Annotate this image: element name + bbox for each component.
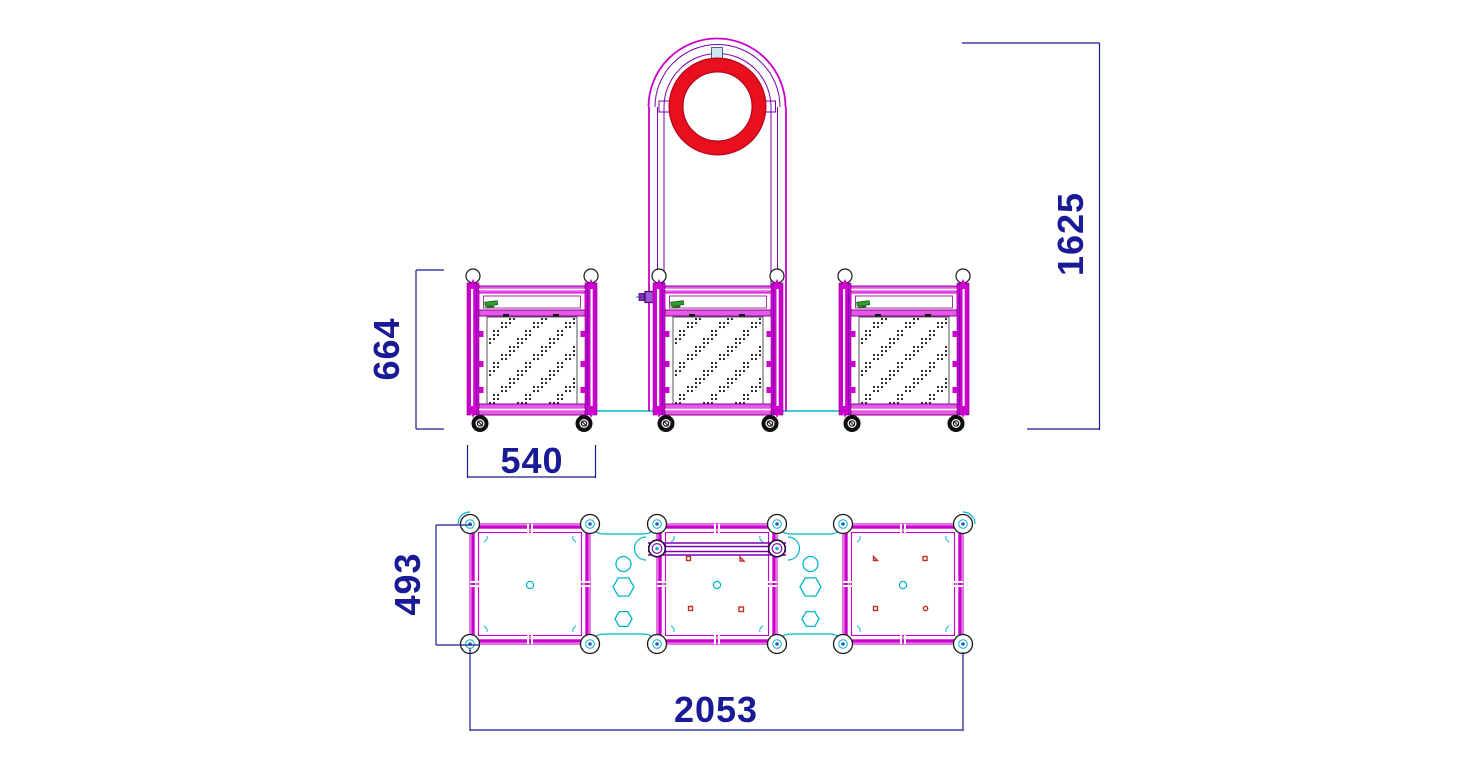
- dimension-label-overall-height: 1625: [1050, 192, 1091, 276]
- dimension-label-cabinet-width: 540: [500, 440, 563, 481]
- middle-cabinet-footprint: [648, 515, 787, 654]
- plan-view: 493 2053: [387, 512, 975, 731]
- left-cabinet: [466, 269, 598, 430]
- dim-overall-height: 1625: [962, 43, 1100, 430]
- dim-cabinet-depth: 493: [387, 525, 480, 645]
- fixing-markers: [687, 557, 928, 612]
- dimension-label-cabinet-depth: 493: [387, 552, 428, 615]
- gap-accessories-left: [613, 557, 634, 627]
- arch-tube-end-right: [769, 537, 800, 560]
- plan-link-outline: [458, 512, 975, 656]
- left-cabinet-footprint: [461, 515, 600, 654]
- ring-tab-top: [712, 48, 723, 60]
- cad-canvas: 664 540 1625: [0, 0, 1481, 759]
- middle-cabinet: [652, 269, 784, 430]
- cad-drawing-sheet: 664 540 1625: [0, 0, 1481, 759]
- dim-cabinet-width: 540: [468, 440, 596, 481]
- arch-tube-end-left: [635, 537, 666, 560]
- dimension-label-overall-length: 2053: [674, 689, 758, 730]
- dim-cabinet-height: 664: [366, 270, 444, 429]
- red-ring: [669, 58, 766, 155]
- front-elevation-view: 664 540 1625: [366, 39, 1100, 482]
- dim-overall-length: 2053: [470, 648, 963, 731]
- right-cabinet-footprint: [834, 515, 973, 654]
- gap-accessories-right: [800, 557, 821, 627]
- right-cabinet: [838, 269, 970, 430]
- arch-top-view: [635, 537, 800, 560]
- dimension-label-cabinet-height: 664: [366, 317, 407, 380]
